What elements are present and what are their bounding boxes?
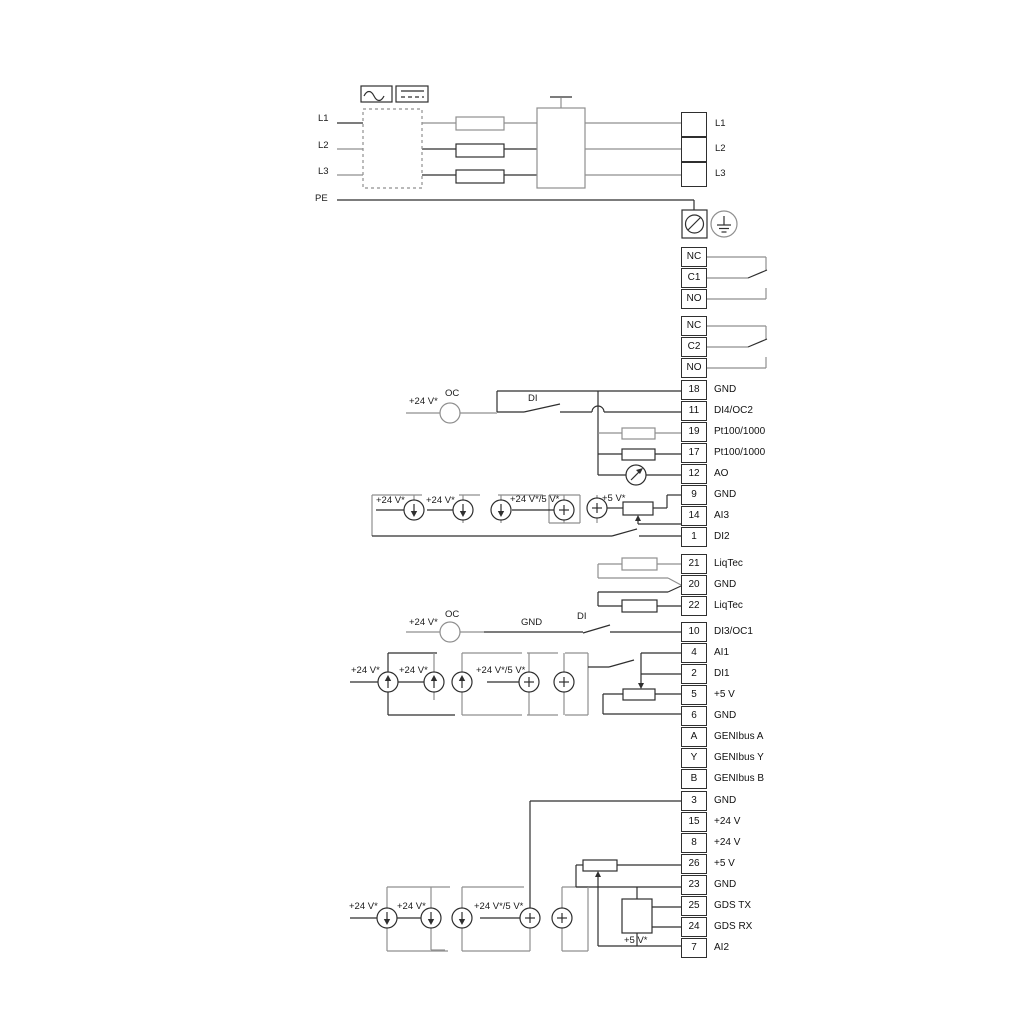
terminal-12: 12 bbox=[681, 464, 707, 484]
diagram-label: +24 V*/5 V* bbox=[476, 666, 525, 676]
terminal-mains-output-block-2 bbox=[681, 162, 707, 187]
terminal-14: 14 bbox=[681, 506, 707, 526]
diagram-label: +24 V* bbox=[409, 397, 438, 407]
terminal-17: 17 bbox=[681, 443, 707, 463]
gds-sensor-icon bbox=[622, 899, 652, 933]
liqtec-resistor-icon bbox=[622, 558, 657, 570]
terminal-24: 24 bbox=[681, 917, 707, 937]
terminal-1: 1 bbox=[681, 527, 707, 547]
diagram-label: L3 bbox=[715, 169, 726, 179]
terminal-label-12: AO bbox=[714, 469, 728, 479]
terminal-7: 7 bbox=[681, 938, 707, 958]
wire-segment bbox=[609, 660, 634, 667]
diagram-label: L2 bbox=[715, 144, 726, 154]
terminal-label-3: GND bbox=[714, 796, 736, 806]
diagram-label: GND bbox=[521, 618, 542, 628]
terminal-11: 11 bbox=[681, 401, 707, 421]
terminal-3: 3 bbox=[681, 791, 707, 811]
terminal-19: 19 bbox=[681, 422, 707, 442]
terminal-label-18: GND bbox=[714, 385, 736, 395]
terminal-label-11: DI4/OC2 bbox=[714, 406, 753, 416]
terminal-mains-output-block-0 bbox=[681, 112, 707, 137]
diagram-label: +24 V*/5 V* bbox=[474, 902, 523, 912]
diagram-label: OC bbox=[445, 389, 459, 399]
terminal-label-8: +24 V bbox=[714, 838, 740, 848]
terminal-label-5: +5 V bbox=[714, 690, 735, 700]
diagram-label: +5 V* bbox=[624, 936, 648, 946]
terminal-C1: C1 bbox=[681, 268, 707, 288]
terminal-mains-output-block-1 bbox=[681, 137, 707, 162]
terminal-21: 21 bbox=[681, 554, 707, 574]
potentiometer-icon bbox=[583, 860, 617, 871]
terminal-label-B: GENIbus B bbox=[714, 774, 764, 784]
fuse-icon bbox=[456, 144, 504, 157]
terminal-C2: C2 bbox=[681, 337, 707, 357]
terminal-15: 15 bbox=[681, 812, 707, 832]
terminal-label-22: LiqTec bbox=[714, 601, 743, 611]
wiring-diagram: NCC1NONCC2NO18GND11DI4/OC219Pt100/100017… bbox=[0, 0, 1024, 1024]
diagram-label: +24 V* bbox=[349, 902, 378, 912]
terminal-label-6: GND bbox=[714, 711, 736, 721]
diagram-label: +24 V* bbox=[426, 496, 455, 506]
terminal-label-1: DI2 bbox=[714, 532, 730, 542]
diagram-label: OC bbox=[445, 610, 459, 620]
diagram-label: DI bbox=[577, 612, 587, 622]
terminal-23: 23 bbox=[681, 875, 707, 895]
terminal-20: 20 bbox=[681, 575, 707, 595]
terminal-26: 26 bbox=[681, 854, 707, 874]
terminal-9: 9 bbox=[681, 485, 707, 505]
pot-wiper-arrow bbox=[635, 515, 641, 521]
terminal-label-15: +24 V bbox=[714, 817, 740, 827]
terminal-18: 18 bbox=[681, 380, 707, 400]
terminal-label-Y: GENIbus Y bbox=[714, 753, 764, 763]
potentiometer-icon bbox=[623, 689, 655, 700]
terminal-label-4: AI1 bbox=[714, 648, 729, 658]
terminal-label-7: AI2 bbox=[714, 943, 729, 953]
terminal-label-10: DI3/OC1 bbox=[714, 627, 753, 637]
contactor-icon bbox=[537, 108, 585, 188]
fuse-icon bbox=[456, 117, 504, 130]
terminal-label-20: GND bbox=[714, 580, 736, 590]
pot-wiper-arrow bbox=[638, 683, 644, 689]
diagram-label: +24 V* bbox=[351, 666, 380, 676]
wire-segment bbox=[748, 339, 767, 347]
wire-segment bbox=[668, 578, 681, 585]
pt100-resistor-icon bbox=[622, 428, 655, 439]
terminal-4: 4 bbox=[681, 643, 707, 663]
terminal-label-14: AI3 bbox=[714, 511, 729, 521]
terminal-label-2: DI1 bbox=[714, 669, 730, 679]
terminal-label-24: GDS RX bbox=[714, 922, 752, 932]
terminal-22: 22 bbox=[681, 596, 707, 616]
wire-segment bbox=[748, 270, 767, 278]
diagram-label: +24 V* bbox=[399, 666, 428, 676]
terminal-8: 8 bbox=[681, 833, 707, 853]
terminal-NO: NO bbox=[681, 289, 707, 309]
terminal-10: 10 bbox=[681, 622, 707, 642]
terminal-2: 2 bbox=[681, 664, 707, 684]
diagram-label: L3 bbox=[318, 167, 329, 177]
terminal-Y: Y bbox=[681, 748, 707, 768]
diagram-label: +24 V* bbox=[397, 902, 426, 912]
open-collector-icon bbox=[440, 622, 460, 642]
terminal-NC: NC bbox=[681, 316, 707, 336]
fuse-icon bbox=[456, 170, 504, 183]
terminal-25: 25 bbox=[681, 896, 707, 916]
diagram-label: L1 bbox=[318, 114, 329, 124]
diagram-label: +24 V* bbox=[409, 618, 438, 628]
terminal-B: B bbox=[681, 769, 707, 789]
diagram-label: L1 bbox=[715, 119, 726, 129]
terminal-label-26: +5 V bbox=[714, 859, 735, 869]
wire-segment bbox=[524, 404, 560, 412]
diagram-label: +24 V* bbox=[376, 496, 405, 506]
wire-segment bbox=[668, 586, 681, 592]
wire-segment bbox=[612, 529, 637, 536]
diagram-label: +24 V*/5 V* bbox=[510, 495, 559, 505]
terminal-label-17: Pt100/1000 bbox=[714, 448, 765, 458]
wire-segment bbox=[583, 625, 610, 633]
terminal-label-21: LiqTec bbox=[714, 559, 743, 569]
terminal-label-25: GDS TX bbox=[714, 901, 751, 911]
terminal-label-A: GENIbus A bbox=[714, 732, 763, 742]
terminal-label-19: Pt100/1000 bbox=[714, 427, 765, 437]
emc-filter-box bbox=[363, 109, 422, 188]
terminal-6: 6 bbox=[681, 706, 707, 726]
diagram-label: DI bbox=[528, 394, 538, 404]
dc-symbol-box bbox=[396, 86, 428, 102]
schematic-wires bbox=[0, 0, 1024, 1024]
pot-wiper-arrow bbox=[595, 871, 601, 877]
diagram-label: PE bbox=[315, 194, 328, 204]
terminal-5: 5 bbox=[681, 685, 707, 705]
terminal-NO: NO bbox=[681, 358, 707, 378]
diagram-label: +5 V* bbox=[602, 494, 626, 504]
terminal-label-9: GND bbox=[714, 490, 736, 500]
open-collector-icon bbox=[440, 403, 460, 423]
terminal-label-23: GND bbox=[714, 880, 736, 890]
terminal-NC: NC bbox=[681, 247, 707, 267]
potentiometer-icon bbox=[623, 502, 653, 515]
terminal-A: A bbox=[681, 727, 707, 747]
diagram-label: L2 bbox=[318, 141, 329, 151]
pt100-resistor-icon bbox=[622, 449, 655, 460]
liqtec-resistor-icon bbox=[622, 600, 657, 612]
